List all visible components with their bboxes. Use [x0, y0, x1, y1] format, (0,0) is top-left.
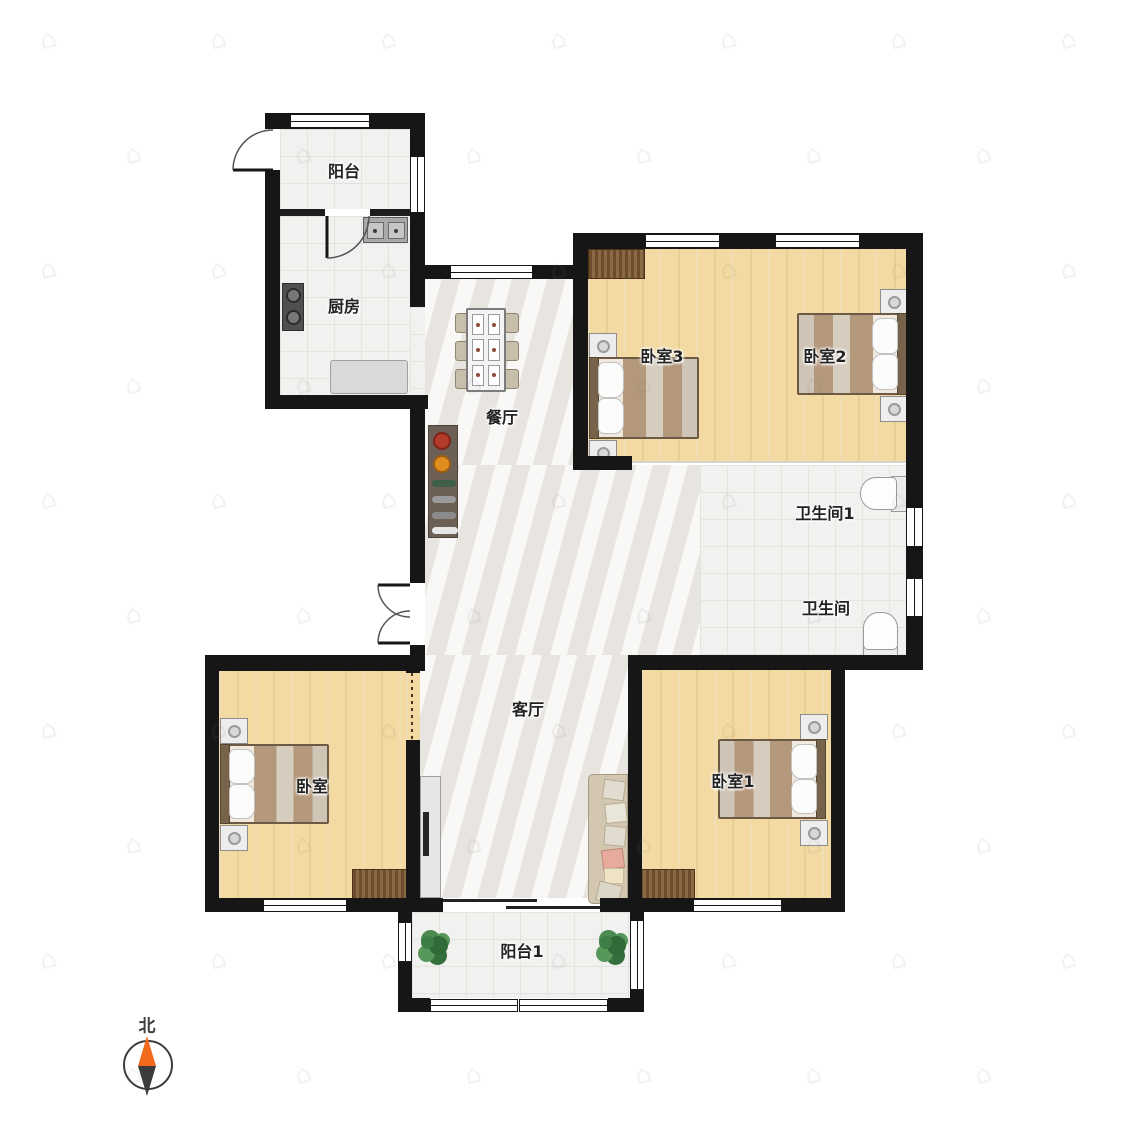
watermark-icon: ⌂: [972, 598, 995, 631]
wall: [265, 395, 428, 409]
plate-icon: [488, 314, 500, 335]
sofa-icon: [588, 774, 628, 904]
label-kitchen: 厨房: [328, 293, 360, 317]
label-bedroom1: 卧室1: [711, 768, 754, 792]
compass-needle-south: [138, 1066, 156, 1096]
sofa-cushion: [603, 825, 627, 847]
watermark-icon: ⌂: [717, 943, 740, 976]
nightstand-icon: [800, 714, 828, 740]
headboard: [816, 739, 826, 819]
bottle-icon: [432, 512, 456, 519]
watermark-icon: ⌂: [37, 23, 60, 56]
dining-chair: [504, 341, 519, 361]
watermark-icon: ⌂: [887, 23, 910, 56]
watermark-icon: ⌂: [207, 483, 230, 516]
window: [410, 156, 425, 213]
radiator-icon: [588, 249, 645, 279]
wall: [628, 655, 642, 912]
tv-icon: [423, 812, 429, 856]
plate-icon: [472, 365, 484, 386]
window: [906, 578, 923, 617]
label-bedroom2: 卧室2: [803, 343, 846, 367]
window: [398, 922, 412, 962]
watermark-icon: ⌂: [1057, 713, 1080, 746]
wall: [410, 213, 425, 307]
bottle-icon: [432, 480, 456, 487]
sink-drain: [373, 229, 377, 233]
watermark-icon: ⌂: [972, 828, 995, 861]
floor-bedroom-bl-doorway: [406, 673, 420, 740]
compass-needle-north: [138, 1036, 156, 1066]
nightstand-icon: [589, 333, 617, 359]
wall: [406, 740, 420, 912]
floor-plan: 阳台 厨房 餐厅 卧室3 卧室2 卫生间1 卫生间 客厅 卧室 卧室1 阳台1 …: [0, 0, 1125, 1125]
wall: [573, 233, 923, 249]
burner-icon: [286, 310, 301, 325]
watermark-icon: ⌂: [37, 253, 60, 286]
wall: [573, 456, 632, 470]
radiator-icon: [633, 869, 695, 899]
floor-kitchen-doorway: [410, 307, 425, 395]
toilet-bowl: [863, 612, 898, 650]
window: [775, 234, 860, 248]
watermark-icon: ⌂: [547, 23, 570, 56]
watermark-icon: ⌂: [37, 483, 60, 516]
label-bath1: 卫生间1: [795, 500, 854, 524]
window: [450, 265, 533, 279]
watermark-icon: ⌂: [887, 713, 910, 746]
pillow-icon: [598, 362, 624, 398]
watermark-icon: ⌂: [972, 138, 995, 171]
plate-icon: [472, 339, 484, 360]
wall: [398, 912, 412, 922]
watermark-icon: ⌂: [802, 1058, 825, 1091]
sliding-door: [443, 899, 537, 902]
watermark-icon: ⌂: [887, 943, 910, 976]
watermark-icon: ⌂: [632, 1058, 655, 1091]
window: [645, 234, 720, 248]
radiator-icon: [352, 869, 408, 899]
wall: [573, 233, 588, 470]
wall: [420, 898, 443, 912]
nightstand-icon: [880, 396, 908, 422]
sofa-cushion: [604, 802, 628, 824]
nightstand-icon: [220, 718, 248, 744]
wall: [831, 655, 845, 912]
toilet-icon-bath1: [860, 476, 908, 510]
window: [630, 920, 644, 990]
plate-icon: [488, 365, 500, 386]
label-bedroom-bl: 卧室: [296, 773, 328, 797]
dining-table-icon: [466, 308, 506, 392]
label-balcony-bottom: 阳台1: [500, 938, 543, 962]
sofa-cushion: [602, 779, 627, 802]
sink-icon: [363, 217, 408, 243]
kitchen-counter: [330, 360, 408, 394]
pillow-icon: [791, 744, 817, 779]
north-label: 北: [139, 1012, 156, 1037]
plant-icon: [599, 936, 612, 949]
window: [693, 899, 782, 912]
watermark-icon: ⌂: [377, 483, 400, 516]
watermark-icon: ⌂: [1057, 253, 1080, 286]
watermark-icon: ⌂: [292, 1058, 315, 1091]
wall: [410, 395, 425, 583]
pillow-icon: [229, 749, 255, 784]
pillow-icon: [872, 318, 898, 354]
wall: [410, 265, 450, 279]
partition-wall: [370, 209, 410, 216]
watermark-icon: ⌂: [122, 368, 145, 401]
pillow-icon: [872, 354, 898, 390]
watermark-icon: ⌂: [37, 943, 60, 976]
wall: [205, 655, 425, 671]
watermark-icon: ⌂: [377, 23, 400, 56]
watermark-icon: ⌂: [1057, 23, 1080, 56]
floor-boundary-line: [632, 461, 906, 463]
watermark-icon: ⌂: [972, 1058, 995, 1091]
red-plate-icon: [433, 432, 451, 450]
label-living: 客厅: [512, 696, 544, 720]
watermark-icon: ⌂: [1057, 943, 1080, 976]
label-bath2: 卫生间: [802, 595, 850, 619]
watermark-icon: ⌂: [122, 828, 145, 861]
burner-icon: [286, 288, 301, 303]
wall: [205, 655, 219, 912]
watermark-icon: ⌂: [122, 138, 145, 171]
watermark-icon: ⌂: [377, 943, 400, 976]
bottle-icon: [432, 496, 456, 503]
window: [290, 114, 370, 128]
wall: [410, 113, 425, 156]
wall: [398, 998, 430, 1012]
bottle-icon: [432, 527, 458, 534]
window: [430, 999, 518, 1012]
wall: [265, 170, 280, 409]
partition-wall: [280, 209, 325, 216]
dining-chair: [504, 313, 519, 333]
watermark-icon: ⌂: [207, 943, 230, 976]
watermark-icon: ⌂: [207, 23, 230, 56]
pillow-icon: [791, 779, 817, 814]
wine-cabinet-icon: [428, 425, 458, 538]
wall: [628, 655, 845, 670]
sliding-door: [506, 906, 600, 909]
plant-icon: [421, 936, 434, 949]
watermark-icon: ⌂: [462, 138, 485, 171]
nightstand-icon: [220, 825, 248, 851]
toilet-bowl: [860, 477, 897, 510]
plate-icon: [472, 314, 484, 335]
label-bedroom3: 卧室3: [640, 343, 683, 367]
label-balcony-top: 阳台: [328, 158, 360, 182]
watermark-icon: ⌂: [1057, 483, 1080, 516]
watermark-icon: ⌂: [462, 1058, 485, 1091]
stove-icon: [282, 283, 304, 331]
sofa-pillow-pink: [601, 848, 625, 871]
watermark-icon: ⌂: [122, 598, 145, 631]
bed-icon-bedroom3: [589, 357, 699, 439]
window: [906, 507, 923, 547]
watermark-icon: ⌂: [37, 713, 60, 746]
watermark-icon: ⌂: [632, 138, 655, 171]
wall: [608, 998, 644, 1012]
watermark-icon: ⌂: [292, 598, 315, 631]
wall: [406, 655, 420, 673]
nightstand-icon: [800, 820, 828, 846]
window: [519, 999, 608, 1012]
toilet-icon-bath2: [862, 612, 898, 658]
window: [263, 899, 347, 912]
watermark-icon: ⌂: [717, 23, 740, 56]
watermark-icon: ⌂: [802, 138, 825, 171]
plate-icon: [488, 339, 500, 360]
label-dining: 餐厅: [486, 404, 518, 428]
orange-plate-icon: [433, 455, 451, 473]
nightstand-icon: [880, 289, 908, 315]
wall: [630, 912, 644, 920]
pillow-icon: [598, 398, 624, 434]
dining-chair: [504, 369, 519, 389]
sink-drain: [394, 229, 398, 233]
watermark-icon: ⌂: [972, 368, 995, 401]
watermark-icon: ⌂: [207, 253, 230, 286]
door-balcony-top: [233, 130, 273, 170]
pillow-icon: [229, 784, 255, 819]
entry-double-door: [378, 585, 410, 643]
